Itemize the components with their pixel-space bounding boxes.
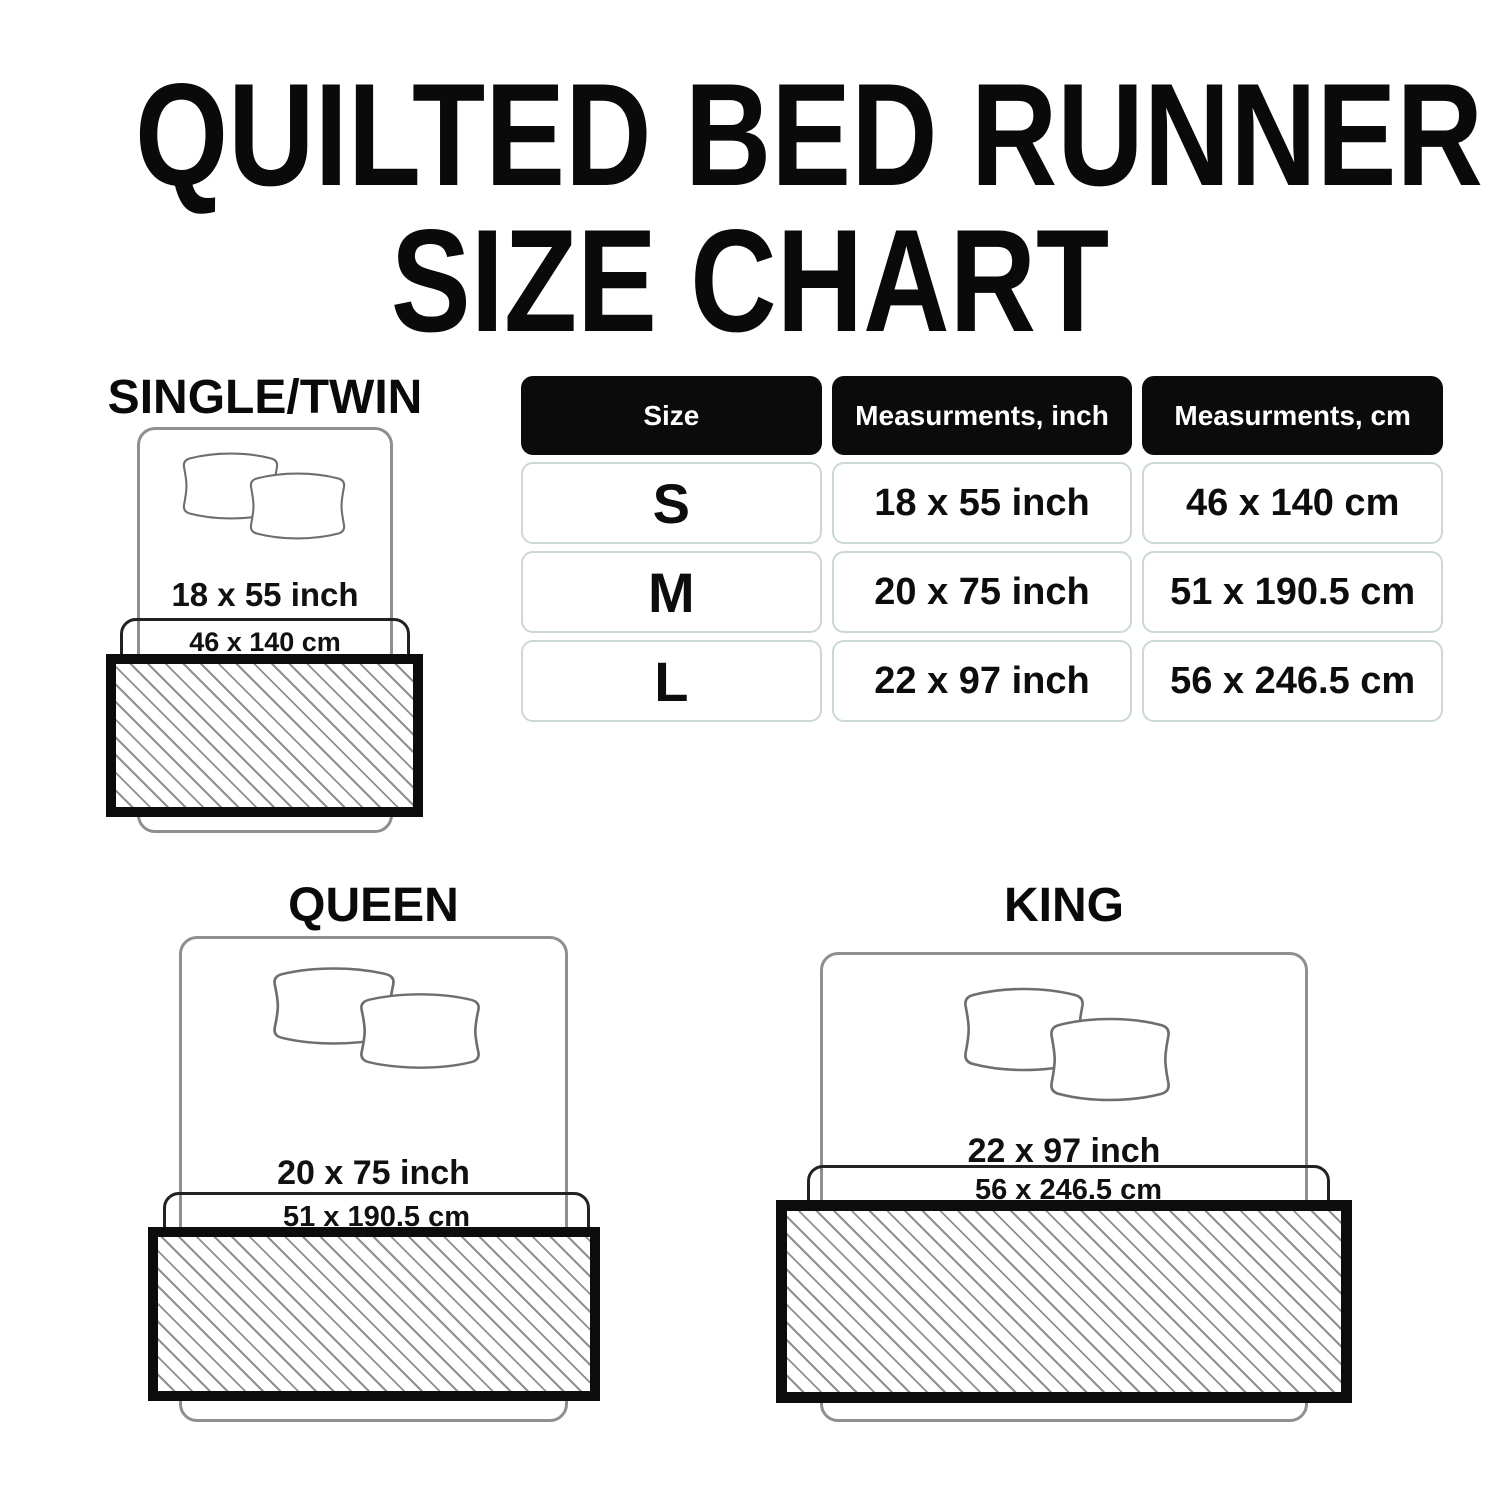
quilted-runner-swatch <box>106 654 423 817</box>
table-cell-cm-s: 46 x 140 cm <box>1142 462 1443 544</box>
table-cell-size-s: S <box>521 462 822 544</box>
pillow-icon <box>354 988 486 1074</box>
table-cell-inch-s: 18 x 55 inch <box>832 462 1133 544</box>
size-table-header-size: Size <box>521 376 822 455</box>
size-table-header-inch: Measurments, inch <box>832 376 1133 455</box>
diagram-king: KING 22 x 97 inch 56 x 246.5 cm <box>760 870 1370 1450</box>
page-title-line1: QUILTED BED RUNNER <box>135 62 1365 208</box>
diagram-queen: QUEEN 20 x 75 inch 51 x 190.5 cm <box>120 870 640 1450</box>
size-table-header-cm: Measurments, cm <box>1142 376 1443 455</box>
table-cell-cm-m: 51 x 190.5 cm <box>1142 551 1443 633</box>
table-cell-size-l: L <box>521 640 822 722</box>
diagram-king-label: KING <box>820 878 1308 933</box>
pillow-icon <box>245 468 350 544</box>
table-cell-cm-l: 56 x 246.5 cm <box>1142 640 1443 722</box>
quilted-runner-swatch <box>776 1200 1352 1403</box>
pillow-icon <box>1044 1012 1176 1107</box>
diagram-single-twin: SINGLE/TWIN 18 x 55 inch 46 x 140 cm <box>85 370 445 850</box>
page-title: QUILTED BED RUNNER SIZE CHART <box>135 62 1365 354</box>
dimension-inch-label: 18 x 55 inch <box>137 576 393 614</box>
quilted-runner-swatch <box>148 1227 600 1401</box>
table-cell-size-m: M <box>521 551 822 633</box>
page-title-line2: SIZE CHART <box>135 208 1365 354</box>
diagram-single-twin-label: SINGLE/TWIN <box>85 370 445 425</box>
size-table: Size Measurments, inch Measurments, cm S… <box>521 376 1443 722</box>
size-chart-infographic: QUILTED BED RUNNER SIZE CHART Size Measu… <box>0 0 1500 1500</box>
dimension-inch-label: 20 x 75 inch <box>179 1154 568 1193</box>
table-cell-inch-m: 20 x 75 inch <box>832 551 1133 633</box>
table-cell-inch-l: 22 x 97 inch <box>832 640 1133 722</box>
diagram-queen-label: QUEEN <box>179 878 568 933</box>
